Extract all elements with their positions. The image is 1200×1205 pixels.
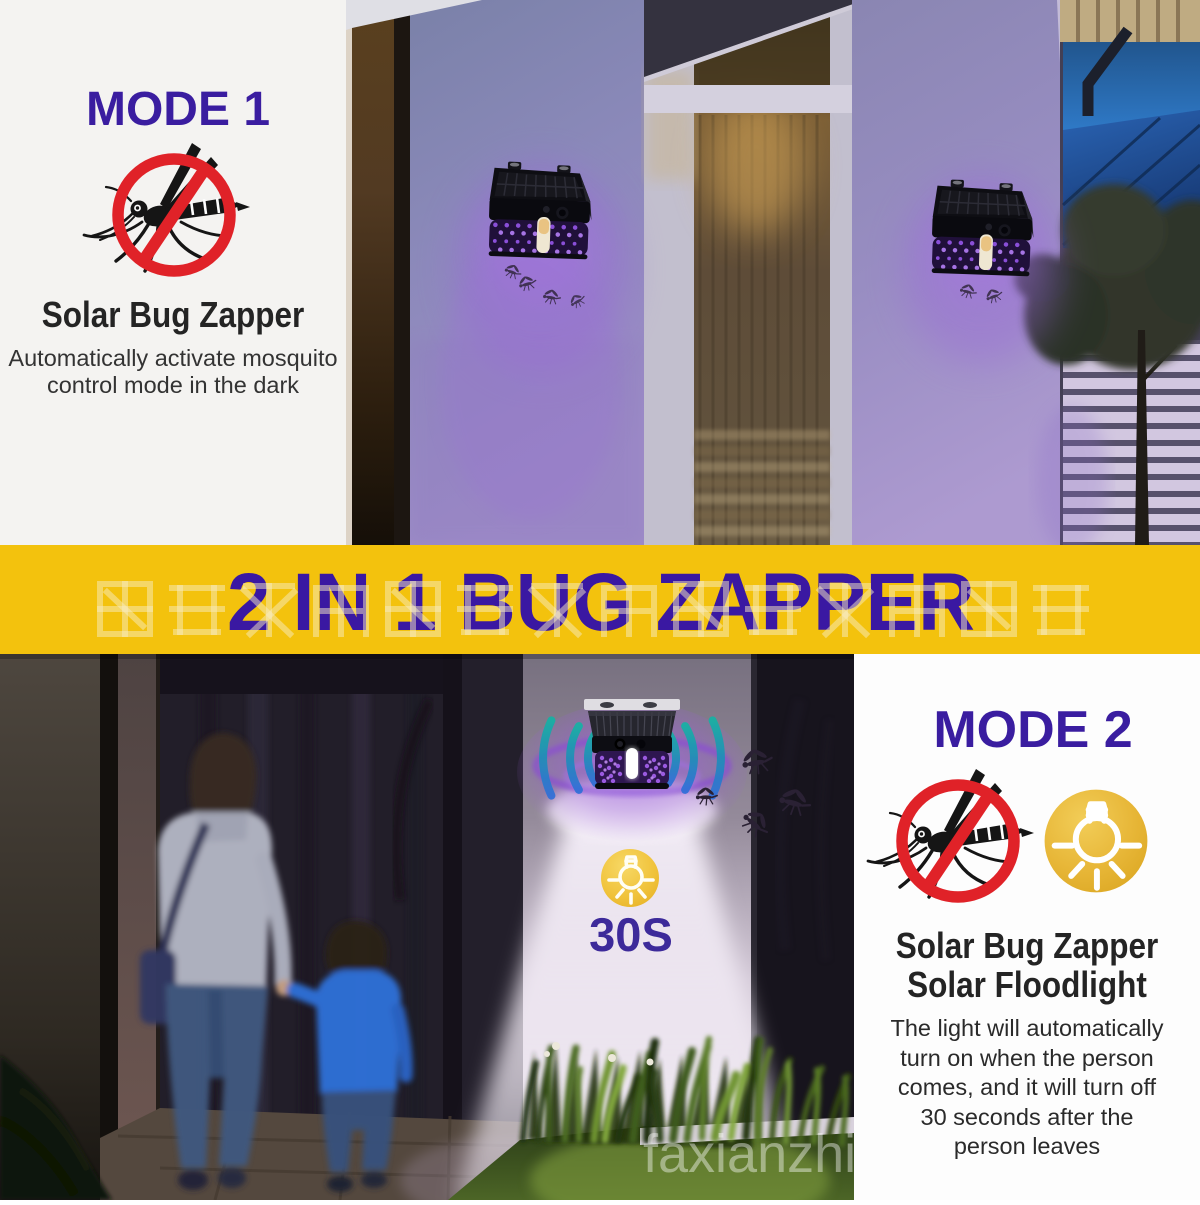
svg-text:30S: 30S	[589, 908, 673, 961]
svg-text:faxianzhi: faxianzhi	[643, 1124, 854, 1184]
